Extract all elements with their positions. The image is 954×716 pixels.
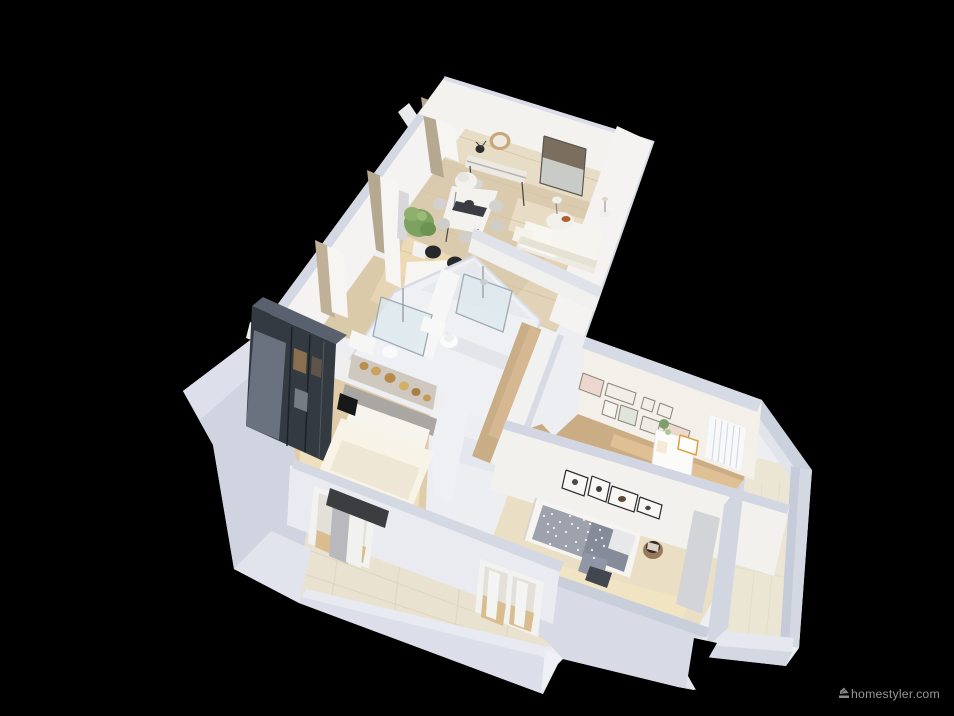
svg-text:homestyler.com: homestyler.com xyxy=(851,687,940,701)
